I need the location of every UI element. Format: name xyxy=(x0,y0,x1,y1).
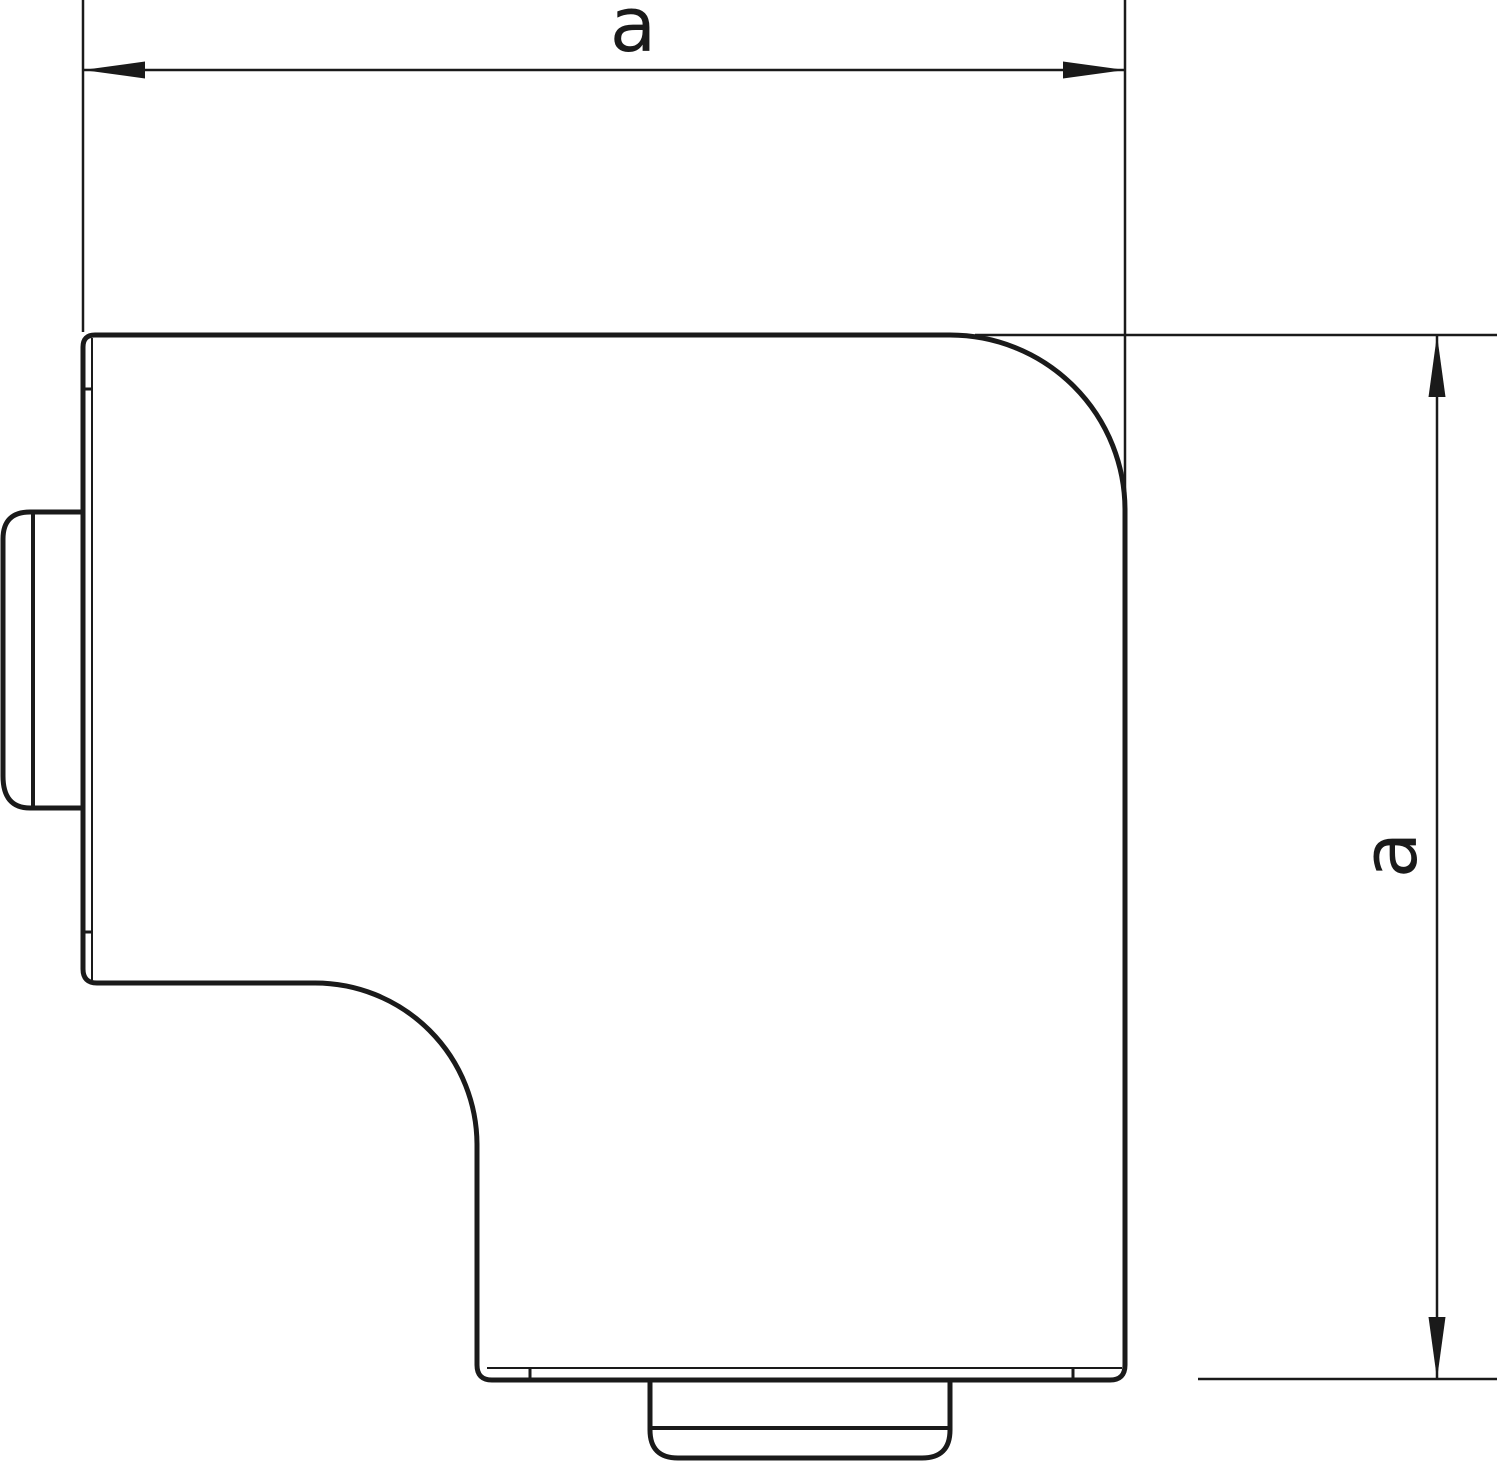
height-dimension-label: a xyxy=(1345,832,1434,879)
technical-drawing-page: a a xyxy=(0,0,1500,1462)
width-dimension-label: a xyxy=(610,0,657,69)
left-duct-stub xyxy=(3,512,83,808)
bottom-duct-stub xyxy=(650,1380,950,1458)
flat-angle-dimension-drawing: a a xyxy=(0,0,1500,1462)
